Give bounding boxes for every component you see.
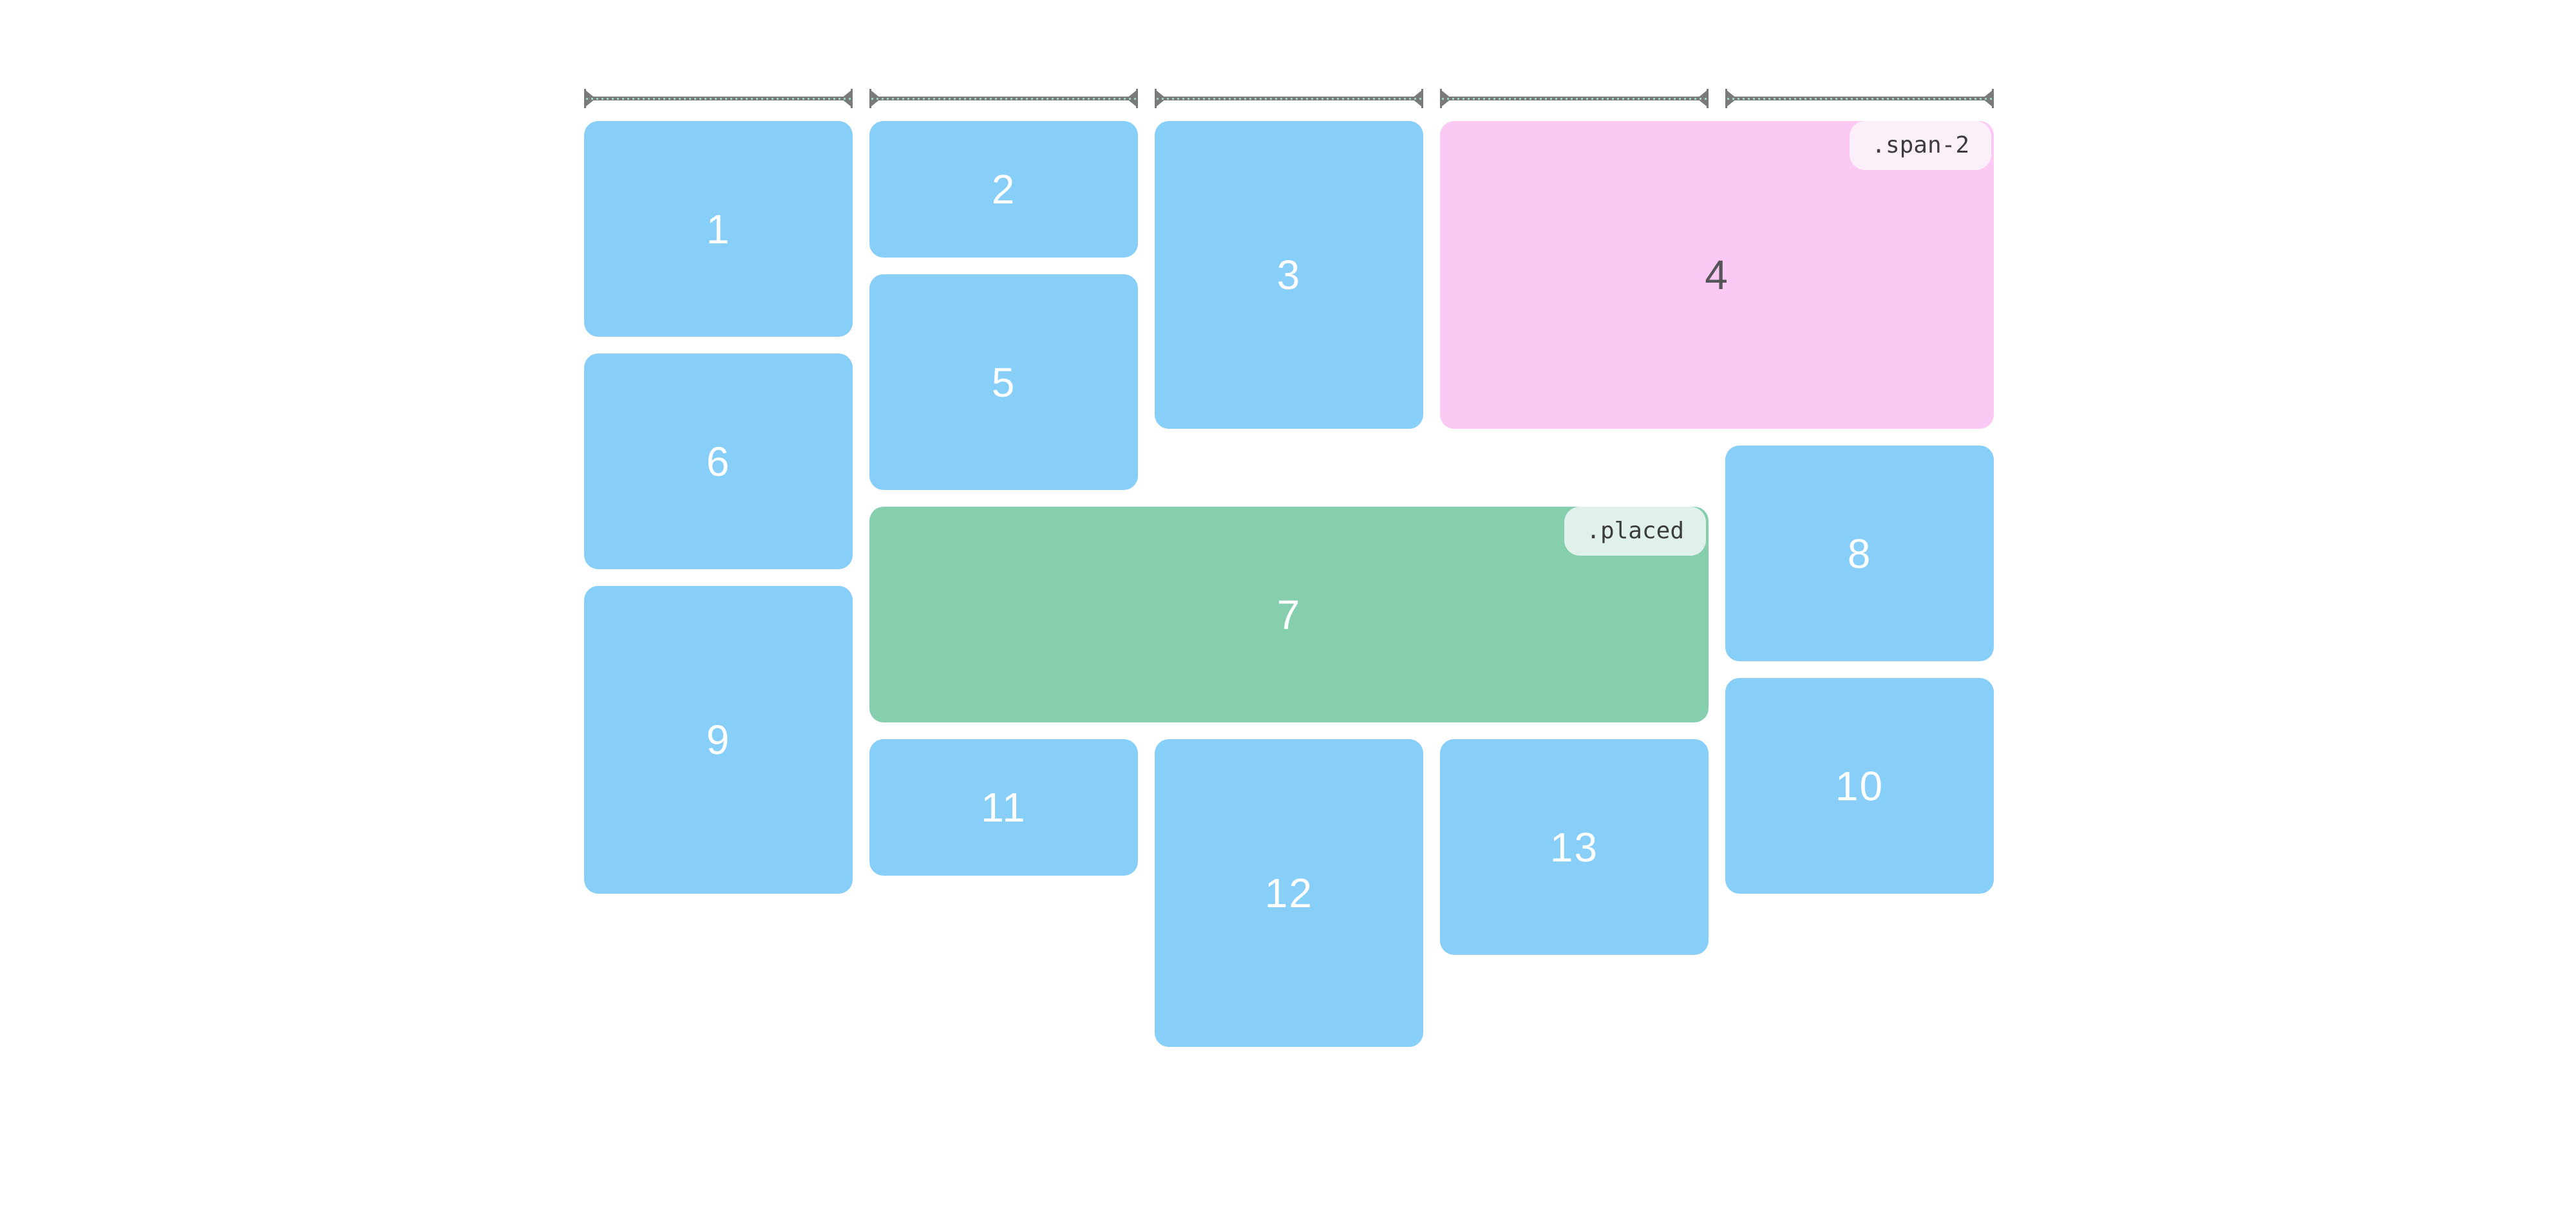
- masonry-grid-demo: 1 2 3 .span-2 4 5 6 .placed 7 8 9 10 11 …: [0, 0, 2576, 1224]
- item-number: 12: [1265, 869, 1313, 917]
- grid-item-3: 3: [1155, 121, 1423, 429]
- column-ruler-1: [584, 90, 853, 107]
- grid-item-11: 11: [869, 739, 1138, 876]
- span-2-badge: .span-2: [1850, 121, 1991, 170]
- grid-item-7-placed: .placed 7: [869, 507, 1709, 722]
- item-number: 7: [1277, 591, 1302, 639]
- ruler-dotted-centerline: [871, 98, 1136, 100]
- ruler-dotted-centerline: [586, 98, 851, 100]
- item-number: 4: [1705, 251, 1729, 299]
- item-number: 13: [1550, 824, 1598, 871]
- column-ruler-5: [1725, 90, 1994, 107]
- grid-item-8: 8: [1725, 446, 1994, 661]
- item-number: 8: [1848, 530, 1872, 578]
- grid-item-12: 12: [1155, 739, 1423, 1047]
- item-number: 2: [992, 165, 1016, 213]
- ruler-end-cap: [851, 89, 853, 108]
- grid-item-4-span-2: .span-2 4: [1440, 121, 1994, 429]
- grid-item-13: 13: [1440, 739, 1709, 955]
- column-ruler-3: [1155, 90, 1423, 107]
- item-number: 9: [706, 716, 731, 764]
- item-number: 5: [992, 359, 1016, 406]
- ruler-dotted-centerline: [1442, 98, 1707, 100]
- grid-item-6: 6: [584, 353, 853, 569]
- grid-item-9: 9: [584, 586, 853, 894]
- ruler-dotted-centerline: [1157, 98, 1421, 100]
- item-number: 10: [1835, 762, 1884, 810]
- item-number: 11: [981, 784, 1026, 831]
- ruler-end-cap: [1992, 89, 1994, 108]
- placed-badge: .placed: [1564, 507, 1706, 556]
- column-ruler-2: [869, 90, 1138, 107]
- item-number: 1: [706, 205, 731, 253]
- ruler-end-cap: [1421, 89, 1423, 108]
- grid-item-5: 5: [869, 274, 1138, 490]
- ruler-end-cap: [1707, 89, 1709, 108]
- ruler-dotted-centerline: [1727, 98, 1992, 100]
- item-number: 6: [706, 438, 731, 485]
- ruler-end-cap: [1136, 89, 1138, 108]
- grid-item-2: 2: [869, 121, 1138, 258]
- grid-item-10: 10: [1725, 678, 1994, 894]
- grid-item-1: 1: [584, 121, 853, 337]
- item-number: 3: [1277, 251, 1302, 299]
- column-ruler-4: [1440, 90, 1709, 107]
